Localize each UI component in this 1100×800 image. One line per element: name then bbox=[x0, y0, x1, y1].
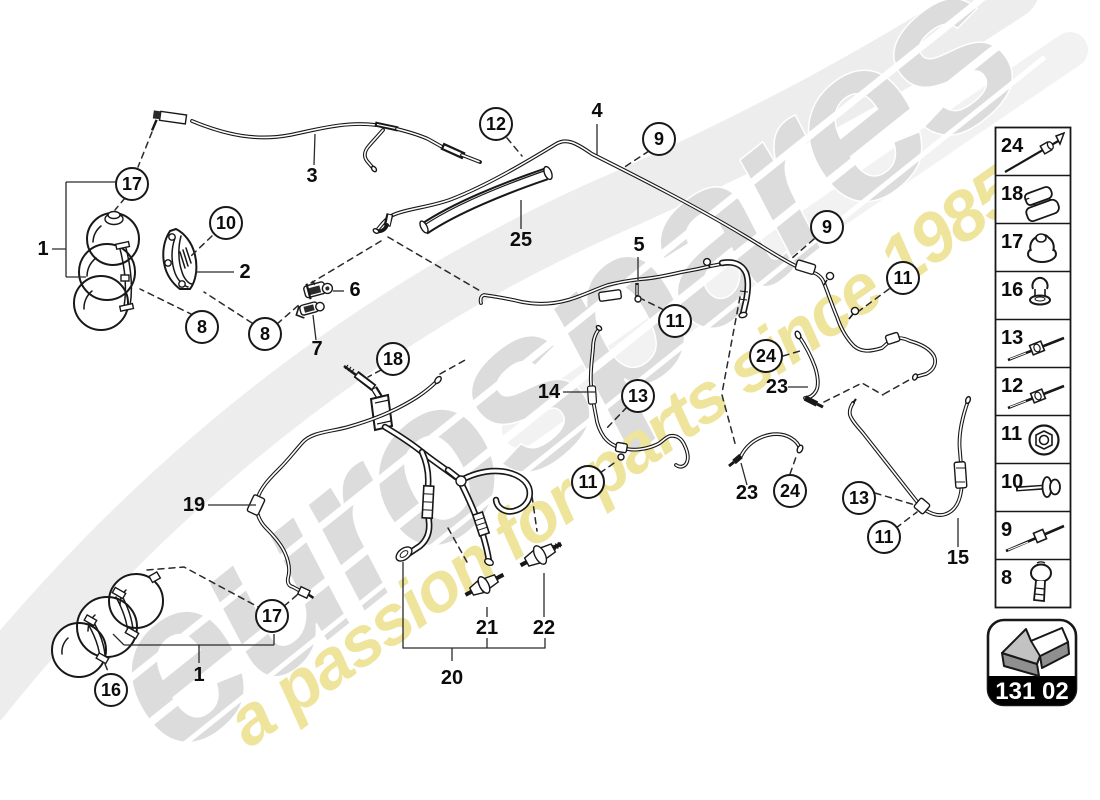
svg-text:9: 9 bbox=[654, 129, 664, 149]
svg-text:24: 24 bbox=[1001, 135, 1024, 157]
svg-text:2: 2 bbox=[239, 261, 250, 283]
svg-text:6: 6 bbox=[349, 279, 360, 301]
svg-text:18: 18 bbox=[1001, 183, 1023, 205]
svg-text:24: 24 bbox=[756, 346, 776, 366]
svg-text:1: 1 bbox=[193, 664, 204, 686]
svg-text:23: 23 bbox=[736, 482, 758, 504]
svg-text:13: 13 bbox=[1001, 327, 1023, 349]
svg-text:23: 23 bbox=[766, 376, 788, 398]
svg-text:131 02: 131 02 bbox=[995, 678, 1068, 705]
svg-text:11: 11 bbox=[1001, 423, 1022, 445]
svg-text:22: 22 bbox=[533, 617, 555, 639]
svg-text:18: 18 bbox=[383, 349, 403, 369]
svg-text:14: 14 bbox=[538, 381, 561, 403]
svg-text:9: 9 bbox=[1001, 519, 1012, 541]
svg-text:10: 10 bbox=[216, 213, 236, 233]
svg-text:8: 8 bbox=[1001, 567, 1012, 589]
svg-text:5: 5 bbox=[633, 234, 644, 256]
svg-text:11: 11 bbox=[665, 311, 684, 331]
svg-text:17: 17 bbox=[262, 606, 282, 626]
svg-text:19: 19 bbox=[183, 494, 205, 516]
svg-text:15: 15 bbox=[947, 547, 969, 569]
svg-text:3: 3 bbox=[306, 165, 317, 187]
svg-text:16: 16 bbox=[1001, 279, 1023, 301]
svg-text:1: 1 bbox=[37, 238, 48, 260]
svg-text:12: 12 bbox=[1001, 375, 1023, 397]
svg-text:11: 11 bbox=[874, 527, 893, 547]
svg-text:17: 17 bbox=[1001, 231, 1023, 253]
svg-text:16: 16 bbox=[101, 680, 121, 700]
svg-text:9: 9 bbox=[822, 217, 832, 237]
svg-text:25: 25 bbox=[510, 229, 532, 251]
svg-text:11: 11 bbox=[578, 472, 597, 492]
svg-text:20: 20 bbox=[441, 667, 463, 689]
svg-text:11: 11 bbox=[893, 268, 912, 288]
svg-text:4: 4 bbox=[591, 100, 603, 122]
svg-text:24: 24 bbox=[780, 481, 800, 501]
svg-text:17: 17 bbox=[122, 174, 142, 194]
svg-text:12: 12 bbox=[486, 114, 506, 134]
svg-text:8: 8 bbox=[260, 324, 270, 344]
svg-text:21: 21 bbox=[476, 617, 498, 639]
svg-text:8: 8 bbox=[197, 317, 207, 337]
svg-text:7: 7 bbox=[311, 338, 322, 360]
svg-text:13: 13 bbox=[628, 386, 648, 406]
svg-text:13: 13 bbox=[849, 488, 869, 508]
